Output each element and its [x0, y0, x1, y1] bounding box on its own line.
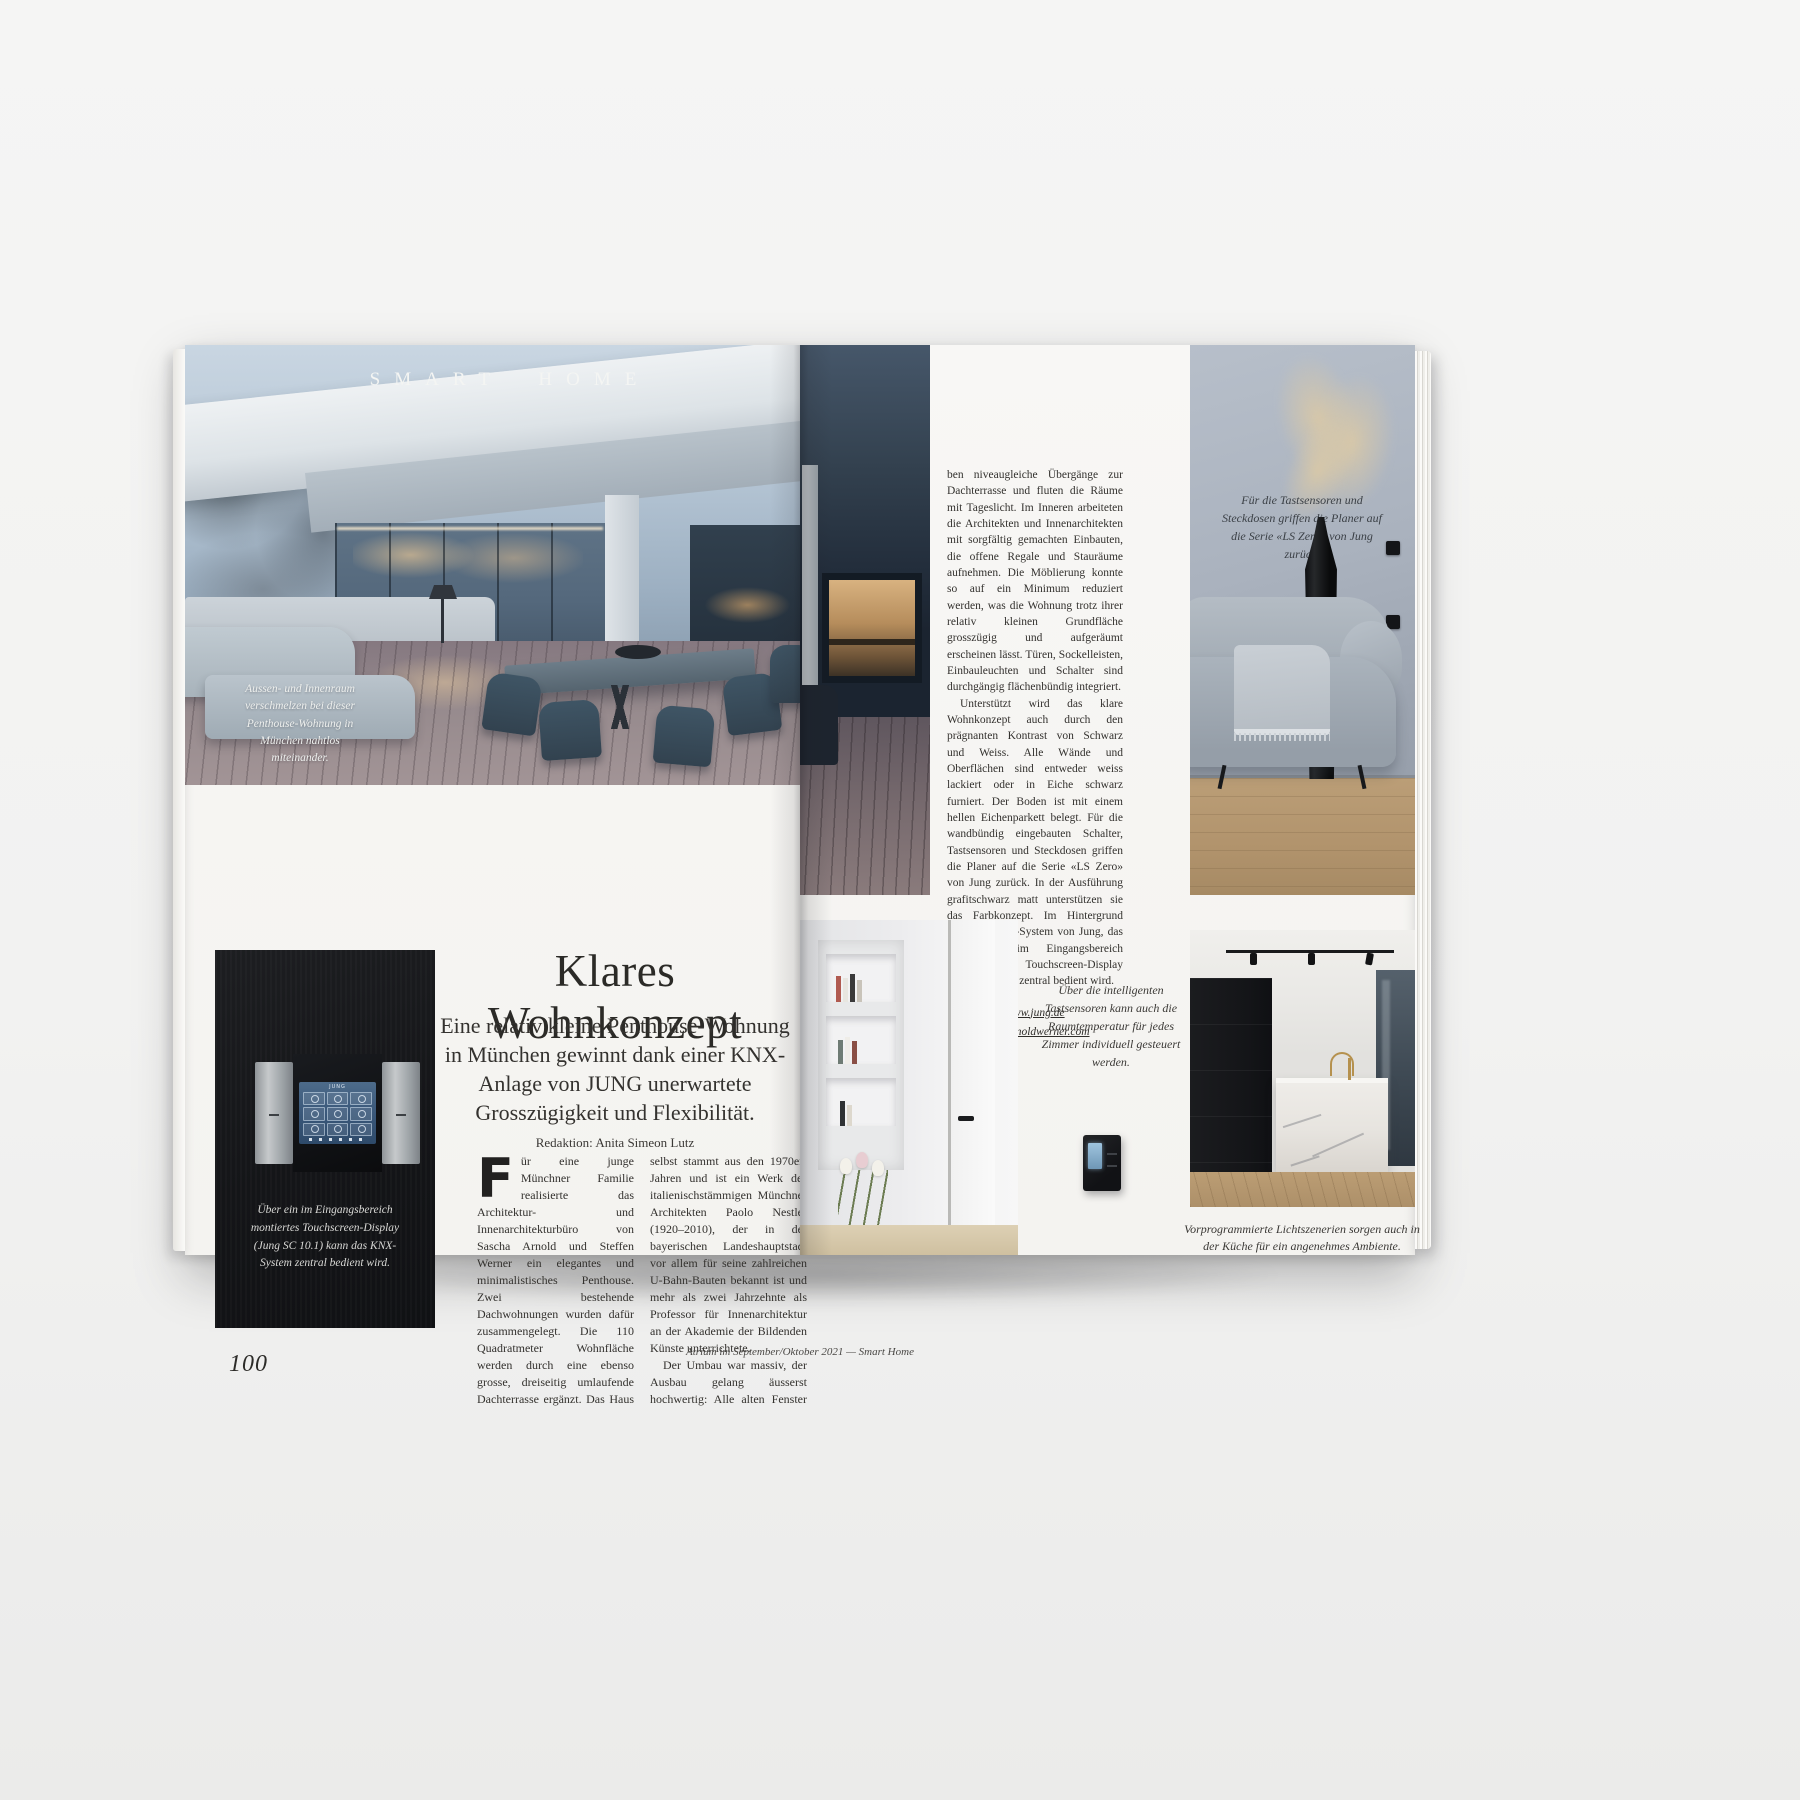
- hero-photo-caption: Aussen- und Innenraum verschmelzen bei d…: [237, 681, 363, 767]
- dining-chair: [538, 699, 602, 761]
- dining-chair: [653, 705, 716, 768]
- kitchen-caption: Vorprogrammierte Lichtszenerien sorgen a…: [1177, 1221, 1427, 1256]
- window-counter-line: [829, 639, 915, 645]
- door-handle: [958, 1116, 974, 1121]
- wall-socket: [1386, 541, 1400, 555]
- terrace-night-photo: [800, 345, 930, 895]
- chair-silhouette: [800, 685, 838, 765]
- kitchen-floor: [1190, 1172, 1415, 1207]
- oak-parquet-floor: [1190, 778, 1415, 895]
- book-spine: [857, 980, 862, 1002]
- dining-chair: [770, 645, 800, 703]
- marble-island: [1276, 1078, 1388, 1172]
- island-countertop: [1276, 1078, 1388, 1083]
- book-spine: [850, 974, 855, 1002]
- touchscreen-icon: [350, 1092, 372, 1105]
- track-light-spot: [1365, 952, 1374, 965]
- facade-pillar: [802, 465, 818, 685]
- controller-screen: [1088, 1143, 1102, 1169]
- touchscreen-brand-label: JUNG: [299, 1084, 376, 1090]
- throw-blanket: [1234, 645, 1330, 735]
- touchscreen-button-row: [309, 1138, 366, 1141]
- magazine-spread: SMART HOME Aussen- und Innenraum verschm…: [185, 345, 1415, 1255]
- flower-stems: [838, 1170, 888, 1230]
- dining-chair: [481, 672, 543, 737]
- track-light-spot: [1250, 953, 1257, 965]
- window-interior: [829, 580, 915, 676]
- device-side-strip: [255, 1062, 293, 1164]
- book-spine: [838, 1040, 843, 1064]
- door: [951, 920, 995, 1255]
- device-side-strip: [382, 1062, 420, 1164]
- hallway-photo: [800, 920, 1018, 1255]
- strip-slot: [269, 1114, 279, 1116]
- book-spine: [845, 1037, 850, 1064]
- sofa-photo-caption: Für die Tastsensoren und Steckdosen grif…: [1218, 491, 1386, 563]
- tulip-bloom: [872, 1160, 884, 1176]
- article-subtitle: Eine relativ kleine Penthouse-Wohnung in…: [437, 1011, 793, 1127]
- body-paragraph: ben niveaugleiche Übergänge zur Dachterr…: [947, 467, 1123, 696]
- book-spine: [843, 978, 848, 1002]
- tulip-bloom: [856, 1152, 868, 1168]
- section-label: SMART HOME: [335, 369, 685, 391]
- kitchen-glow: [700, 585, 795, 625]
- article-body: Für eine junge Münchner Familie realisie…: [477, 1153, 807, 1415]
- touchscreen-icon: [350, 1123, 372, 1136]
- track-light-spot: [1308, 953, 1315, 965]
- switch-caption: Über die intelligenten Tastsensoren kann…: [1030, 981, 1192, 1071]
- living-room-photo: Für die Tastsensoren und Steckdosen grif…: [1190, 345, 1415, 895]
- book-spine: [840, 1101, 845, 1126]
- book-spine: [852, 1041, 857, 1064]
- page-number: 100: [229, 1351, 268, 1378]
- brass-faucet-stem: [1348, 1058, 1351, 1080]
- room-controller-photo: [1083, 1135, 1121, 1191]
- hallway-floor: [800, 1225, 1018, 1255]
- led-strip: [337, 527, 603, 530]
- shelf-niche: [826, 954, 896, 1002]
- controller-button: [1107, 1153, 1117, 1155]
- table-bowl: [615, 645, 661, 659]
- touchscreen-icon-grid: [303, 1092, 372, 1136]
- book-spine: [847, 1105, 852, 1126]
- terrace-hero-photo: SMART HOME Aussen- und Innenraum verschm…: [185, 345, 800, 785]
- touchscreen-icon: [303, 1123, 325, 1136]
- lit-window: [822, 573, 922, 683]
- tulip-bloom: [840, 1158, 852, 1174]
- touchscreen-icon: [303, 1092, 325, 1105]
- controller-button: [1107, 1165, 1117, 1167]
- touchscreen-icon: [350, 1107, 372, 1120]
- facade-pillar: [605, 495, 639, 655]
- shelf-niche: [826, 1078, 896, 1126]
- display-caption: Über ein im Eingangsbereich montiertes T…: [239, 1202, 411, 1273]
- touchscreen-icon: [327, 1123, 349, 1136]
- touchscreen-icon: [327, 1092, 349, 1105]
- shelf-niche: [826, 1016, 896, 1064]
- touchscreen-icon: [303, 1107, 325, 1120]
- touchscreen-icon: [327, 1107, 349, 1120]
- touchscreen-display: JUNG: [299, 1082, 376, 1144]
- terrace-lamp-post: [441, 597, 444, 643]
- blanket-fringe: [1234, 733, 1330, 741]
- page-stack-edge: [1415, 351, 1431, 1249]
- touchscreen-panel-photo: JUNG Über ein im Eingangsbereich montier…: [215, 950, 435, 1328]
- strip-slot: [396, 1114, 406, 1116]
- footer-credit: Atrium im September/Oktober 2021 — Smart…: [605, 1346, 995, 1358]
- book-spine: [836, 976, 841, 1002]
- dropcap: F: [477, 1153, 521, 1200]
- cover-edge: [173, 349, 185, 1251]
- kitchen-window: [690, 525, 800, 653]
- kitchen-photo: [1190, 930, 1415, 1207]
